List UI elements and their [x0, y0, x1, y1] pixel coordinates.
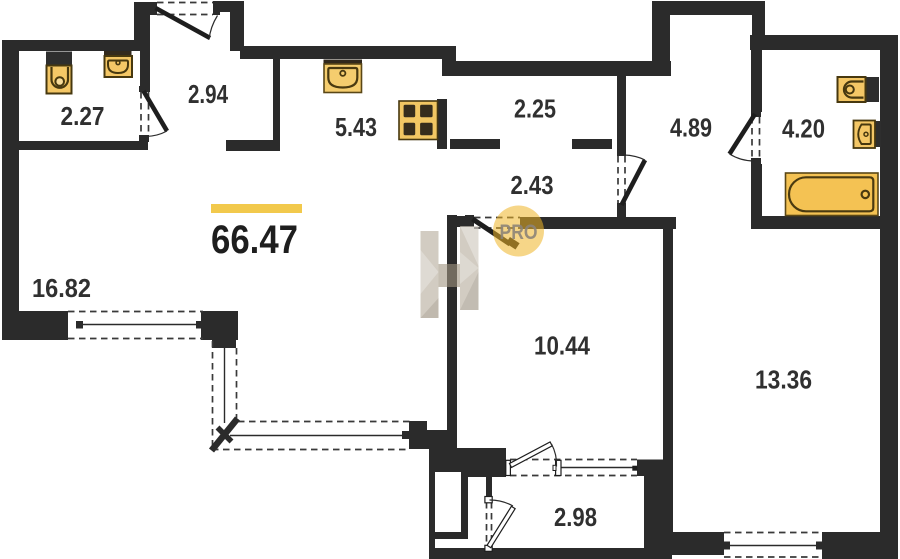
svg-text:2.94: 2.94: [188, 79, 228, 109]
svg-text:10.44: 10.44: [534, 331, 590, 361]
svg-text:PRO: PRO: [500, 221, 538, 244]
svg-text:13.36: 13.36: [755, 365, 812, 395]
svg-text:2.25: 2.25: [514, 94, 556, 124]
svg-text:4.20: 4.20: [782, 114, 825, 144]
svg-text:2.27: 2.27: [61, 101, 105, 131]
svg-text:16.82: 16.82: [32, 273, 91, 303]
svg-text:2.98: 2.98: [554, 502, 597, 532]
svg-text:4.89: 4.89: [670, 113, 712, 143]
svg-text:5.43: 5.43: [335, 112, 377, 142]
svg-text:2.43: 2.43: [511, 170, 554, 200]
svg-text:66.47: 66.47: [211, 218, 298, 262]
